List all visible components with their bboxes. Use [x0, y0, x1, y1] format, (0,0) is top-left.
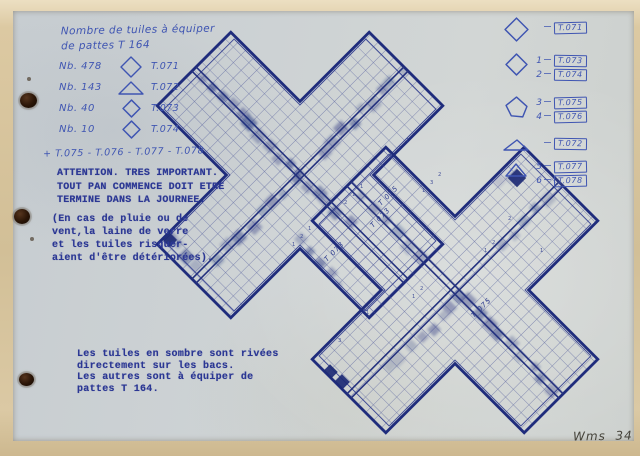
legend-row: 5 T.077 6 T.078	[499, 159, 619, 188]
cell-digit: 2	[420, 286, 423, 292]
warning-line: TOUT PAN COMMENCE DOIT ETRE	[57, 181, 224, 195]
ink-speck	[27, 77, 31, 81]
legend-ref-box: T.077	[554, 161, 587, 173]
smudge-cell	[462, 172, 475, 185]
cell-digit: 1	[540, 248, 543, 254]
dash-mark	[544, 26, 551, 27]
cell-digit: 2	[492, 240, 495, 246]
footer-line: directement sur les bacs.	[77, 361, 279, 373]
paren-line: et les tuiles risquer-	[52, 239, 213, 252]
legend-entry: 4 T.076	[533, 110, 587, 124]
punch-hole	[14, 209, 30, 224]
dash-mark	[544, 165, 551, 166]
dash-mark	[544, 73, 551, 74]
dash-mark	[544, 59, 551, 60]
paren-line: (En cas de pluie ou de	[52, 213, 213, 226]
dash-mark	[544, 101, 551, 102]
cell-digit: 1	[292, 242, 295, 248]
legend-ref-box: T.072	[554, 138, 587, 150]
legend-entry: 3 T.075	[533, 96, 587, 110]
page-reference: Wms 34	[573, 428, 633, 443]
tile-ref: T.072	[151, 82, 179, 93]
footer-line: pattes T 164.	[77, 384, 279, 396]
legend-row: 3 T.075 4 T.076	[499, 95, 619, 124]
punch-hole	[20, 93, 37, 108]
heading-line: de pattes T 164	[61, 37, 215, 55]
legend-ref-box: T.071	[554, 22, 587, 34]
tile-quantity: Nb. 478	[59, 61, 111, 72]
legend-entry: 6 T.078	[533, 174, 587, 188]
legend-entry: 5 T.077	[533, 160, 587, 174]
footer-line: Les autres sont à équiper de	[77, 372, 279, 384]
smudge-cell	[463, 414, 477, 428]
diamond-icon	[111, 99, 151, 118]
cell-digit: 1	[412, 294, 415, 300]
tile-quantity: Nb. 40	[59, 103, 111, 114]
scanned-page: T 075 T 073 T 073 T 075 1212112113211212…	[0, 0, 640, 456]
tile-quantity: Nb. 10	[59, 124, 111, 135]
paper-sheet: T 075 T 073 T 073 T 075 1212112113211212…	[13, 11, 634, 441]
legend-entry-number: 2	[533, 70, 542, 80]
legend-ref-box: T.076	[554, 111, 587, 123]
tile-ref: T.074	[151, 124, 179, 135]
paren-line: vent,la laine de verre	[52, 226, 213, 239]
cell-digit: 1	[366, 310, 369, 316]
smudge-cell	[471, 172, 485, 186]
list-item: Nb. 40 T.073	[59, 98, 179, 119]
footer-line: Les tuiles en sombre sont rivées	[77, 349, 279, 361]
ink-speck	[30, 237, 34, 241]
cell-digit: 1	[390, 154, 393, 160]
list-item: Nb. 478 T.071	[59, 56, 179, 77]
cell-digit: 3	[430, 180, 433, 186]
diamond-icon	[499, 53, 533, 76]
legend-row: 1 T.073 2 T.074	[499, 53, 619, 82]
warning-parenthetical: (En cas de pluie ou de vent,la laine de …	[52, 213, 213, 265]
cell-digit: 1	[406, 138, 409, 144]
smudge-cell	[447, 407, 459, 419]
triangle-icon	[499, 136, 533, 153]
cell-digit: 2	[398, 146, 401, 152]
triangle-icon	[499, 159, 533, 179]
cell-digit: 2	[438, 172, 441, 178]
tile-ref: T.071	[151, 61, 179, 72]
list-item: Nb. 143 T.072	[59, 77, 179, 98]
legend-entry-number: 6	[533, 176, 542, 186]
cell-digit: 1	[308, 226, 311, 232]
legend-entry-number: 3	[533, 98, 542, 108]
tile-quantity-list: Nb. 478 T.071 Nb. 143 T.072 Nb. 40 T.073	[59, 56, 179, 140]
cell-digit: 1	[484, 248, 487, 254]
dash-mark	[544, 115, 551, 116]
legend-ref-box: T.073	[554, 55, 587, 67]
diamond-icon	[111, 120, 151, 139]
legend-entry: 2 T.074	[533, 68, 587, 82]
tile-quantity: Nb. 143	[59, 82, 111, 93]
legend-row: T.071	[499, 16, 619, 43]
legend-ref-box: T.078	[554, 175, 587, 187]
smudge-cell	[472, 422, 484, 434]
legend-entry: 1 T.073	[533, 54, 587, 68]
legend-ref-box: T.075	[554, 97, 587, 109]
list-item: Nb. 10 T.074	[59, 119, 179, 140]
cell-digit: 3	[338, 338, 341, 344]
legend-entry-number: 4	[533, 112, 542, 122]
legend-entry-number: 1	[533, 56, 542, 66]
cell-digit: 1	[352, 192, 355, 198]
legend-entry-number: 5	[533, 162, 542, 172]
cell-digit: 2	[300, 234, 303, 240]
legend-ref-box: T.074	[554, 69, 587, 81]
diamond-icon	[499, 16, 533, 43]
diamond-icon	[111, 56, 151, 78]
punch-hole	[19, 373, 34, 386]
pentagon-icon	[499, 95, 533, 120]
footer-note: Les tuiles en sombre sont rivées directe…	[77, 349, 279, 395]
legend-entry: T.072	[533, 137, 587, 151]
cell-digit: 2	[344, 200, 347, 206]
triangle-icon	[111, 79, 151, 97]
cell-digit: 2	[508, 216, 511, 222]
smudge-cell	[438, 398, 455, 415]
paren-line: aient d'être détériorées).	[52, 252, 213, 265]
handwritten-heading: Nombre de tuiles à équiper de pattes T 1…	[61, 22, 215, 55]
heading-line: Nombre de tuiles à équiper	[61, 22, 215, 40]
dash-mark	[544, 142, 551, 143]
cell-digit: 1	[422, 188, 425, 194]
cell-digit: 1	[360, 184, 363, 190]
warning-block: ATTENTION. TRES IMPORTANT. TOUT PAN COMM…	[57, 167, 224, 208]
legend: T.071 1 T.073 2 T.074	[499, 16, 619, 194]
warning-line: TERMINE DANS LA JOURNEE.	[57, 194, 224, 208]
tile-ref: T.073	[151, 103, 179, 114]
legend-row: T.072	[499, 136, 619, 153]
dash-mark	[544, 179, 551, 180]
legend-entry: T.071	[533, 21, 587, 35]
warning-line: ATTENTION. TRES IMPORTANT.	[57, 167, 224, 181]
